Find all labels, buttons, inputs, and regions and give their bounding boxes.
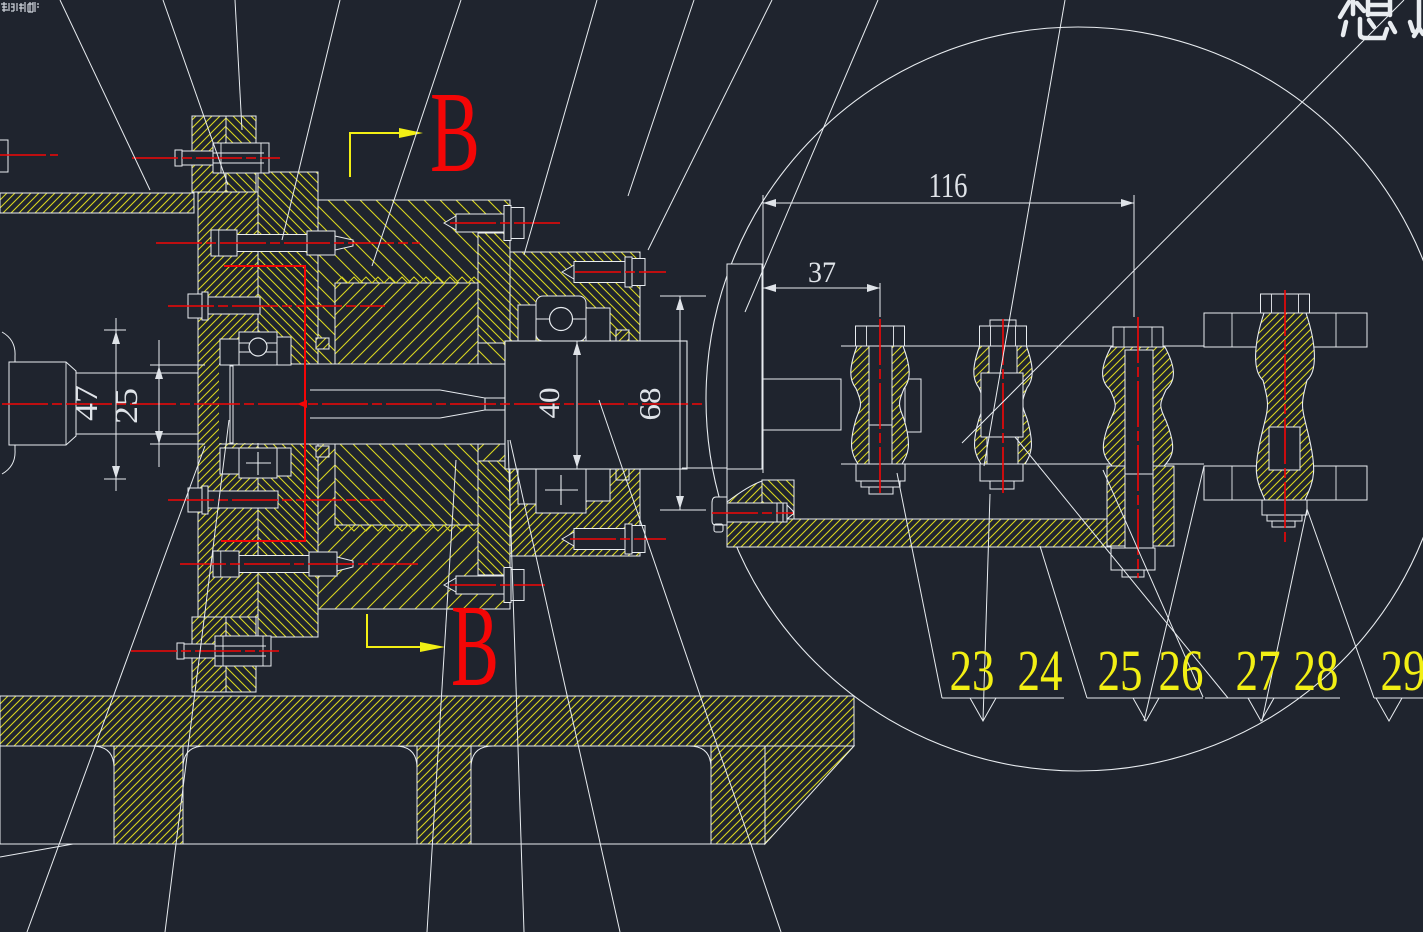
- svg-text:B: B: [430, 69, 480, 196]
- svg-text:29: 29: [1381, 638, 1423, 703]
- svg-text:40: 40: [533, 388, 566, 419]
- svg-text:47: 47: [69, 385, 105, 421]
- svg-text:B: B: [451, 580, 499, 711]
- svg-text:37: 37: [808, 256, 836, 289]
- svg-text:28: 28: [1294, 638, 1339, 703]
- svg-text:27: 27: [1236, 638, 1281, 703]
- svg-text:116: 116: [929, 166, 968, 205]
- svg-text:23: 23: [950, 638, 995, 703]
- svg-text:68: 68: [632, 388, 667, 421]
- svg-text:25: 25: [1098, 638, 1143, 703]
- svg-text:24: 24: [1018, 638, 1063, 703]
- svg-text:25: 25: [109, 388, 145, 424]
- svg-text:26: 26: [1159, 638, 1204, 703]
